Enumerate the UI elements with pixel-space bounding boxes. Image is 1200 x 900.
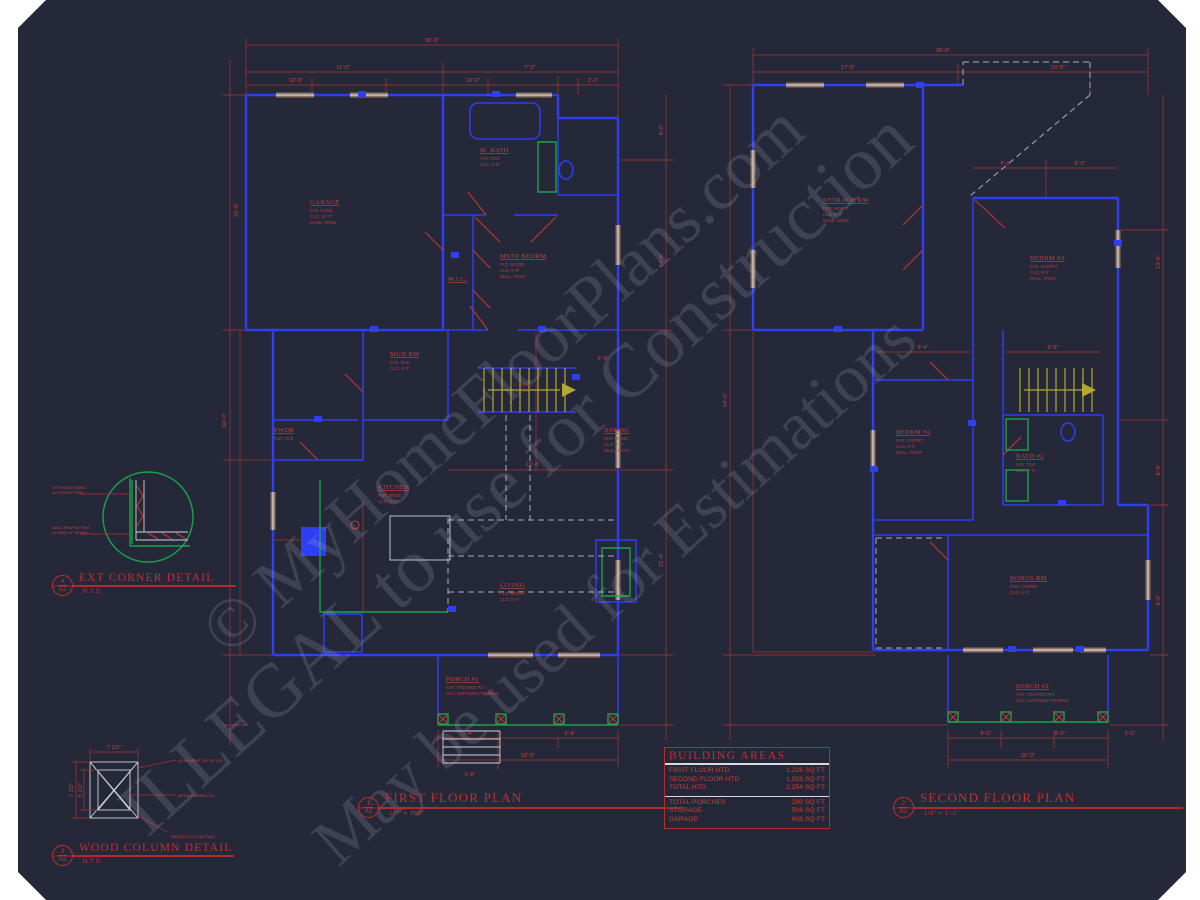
dim-label: 8'-0" <box>1001 161 1012 167</box>
room-label-bonus: BONUS RM <box>1010 575 1047 582</box>
table-title: BUILDING AREAS <box>665 748 829 765</box>
svg-text:FLR: TREATED PLY: FLR: TREATED PLY <box>1016 692 1055 697</box>
table-row: FIRST FLOOR HTD 1,226 SQ FT <box>665 767 829 776</box>
first-floor-title-block: 1 A2 FIRST FLOOR PLAN 1/4" = 1'-0" <box>358 786 683 818</box>
svg-text:FLR: TILE: FLR: TILE <box>390 360 410 365</box>
dim-label: 21'-4" <box>659 553 665 567</box>
porch-columns <box>948 712 1108 722</box>
svg-text:CLG: 9'-0": CLG: 9'-0" <box>500 597 520 602</box>
table-row: STORAGE 508 SQ FT <box>665 807 829 816</box>
room-label-bath2: BATH #2 <box>1016 453 1044 460</box>
dim-label: 19'-8" <box>526 462 540 468</box>
dim-label: 5 1/2" <box>78 783 84 797</box>
kitchen-sink <box>301 527 326 556</box>
dim-label: 2'-8" <box>465 772 476 778</box>
table-row: SECOND FLOOR HTD 1,028 SQ FT <box>665 776 829 785</box>
table-row: GARAGE 608 SQ FT <box>665 816 829 825</box>
dim-label: 26'-0" <box>1021 753 1035 759</box>
detail-marker: 3 A2 <box>52 845 73 866</box>
dim-label: 18'-0" <box>521 753 535 759</box>
svg-text:CLG: 9'-0": CLG: 9'-0" <box>500 268 520 273</box>
svg-text:WALL: PAINT: WALL: PAINT <box>1030 276 1057 281</box>
room-label-pwdr: PWDR <box>274 427 295 434</box>
ceiling-beams-dashed <box>448 518 618 612</box>
walls-exterior <box>246 95 618 655</box>
dim-label: 5'-4" <box>463 731 474 737</box>
svg-text:FLR: TREATED PLY: FLR: TREATED PLY <box>446 685 485 690</box>
second-floor-plan-drawing: 30'-8" 17'-0" 10'-8" 8'-0" 8'-0" 54'-0" … <box>713 35 1193 795</box>
walls-interior <box>873 198 1148 722</box>
svg-text:CLG: 9'-0": CLG: 9'-0" <box>896 444 916 449</box>
dim-label: 30'-8" <box>936 48 950 54</box>
dim-label: 11'-0" <box>336 65 350 71</box>
svg-text:FLR: WOOD: FLR: WOOD <box>604 436 628 441</box>
blueprint-sheet: 30'-8" 11'-0" 7'-2" 10'-8" 10'-8" 3'-0" … <box>18 0 1186 900</box>
table-row: TOTAL HTD 2,254 SQ FT <box>665 784 829 793</box>
detail-note: EXT WOOD SIDING <box>52 486 86 490</box>
plan-marker: 2 A2 <box>893 797 914 818</box>
room-label-porch1: PORCH #1 <box>446 676 479 683</box>
kitchen-counters <box>320 142 630 725</box>
table-row: TOTAL PORCHES 280 SQ FT <box>665 799 829 808</box>
heated-areas-group: FIRST FLOOR HTD 1,226 SQ FT SECOND FLOOR… <box>665 765 829 796</box>
wood-column-title-block: 3 A2 WOOD COLUMN DETAIL N.T.S. <box>52 834 234 866</box>
svg-text:CLG: 9'-0": CLG: 9'-0" <box>378 499 398 504</box>
dimension-lines <box>723 48 1168 768</box>
stairs-note: @ 7 3/4" <box>516 389 531 393</box>
svg-text:FLR: WOOD: FLR: WOOD <box>500 591 524 596</box>
title-underline <box>52 855 234 857</box>
leader-notes: EXT WOOD SIDING W/ CORNER TRIM WALL WRAP… <box>52 486 130 535</box>
dim-label: 7 1/2" <box>69 783 75 797</box>
toilet <box>1061 423 1075 441</box>
title-underline <box>893 807 1183 809</box>
detail-marker: 4 A2 <box>52 575 73 596</box>
detail-note: ALUM WRAP TOP OF COL <box>178 759 223 763</box>
dim-label: 14'-6" <box>659 253 665 267</box>
bathtub <box>470 103 540 139</box>
corner-section <box>130 478 190 546</box>
svg-text:FLR: TILE: FLR: TILE <box>480 156 500 161</box>
dim-label: 10'-8" <box>466 78 480 84</box>
dim-label: 9'-4" <box>565 731 576 737</box>
wood-column-detail-drawing: 7 1/2" 7 1/2" 5 1/2" ALUM WRAP TOP OF CO… <box>48 732 248 837</box>
detail-note: METAL FRAMED COL <box>178 794 215 798</box>
svg-text:CLG: 9'-0": CLG: 9'-0" <box>1030 270 1050 275</box>
dim-label: 8'-0" <box>659 124 665 135</box>
svg-text:FLR: TILE: FLR: TILE <box>1016 462 1036 467</box>
svg-text:CLG: 8'-0": CLG: 8'-0" <box>823 212 843 217</box>
room-label-dining: DINING <box>604 427 630 434</box>
room-label-bedrm3: BEDRM #3 <box>1030 255 1064 262</box>
dim-label: 8'-0" <box>1156 594 1162 605</box>
stairs-note: 17 RISERS <box>514 383 533 387</box>
title-underline <box>52 585 236 587</box>
kitchen-island <box>390 516 450 560</box>
plan-scale: 1/4" = 1'-0" <box>389 811 424 817</box>
svg-text:FLR: WOOD: FLR: WOOD <box>823 206 847 211</box>
svg-text:FLR: TILE: FLR: TILE <box>274 436 294 441</box>
detail-scale: N.T.S. <box>83 859 102 865</box>
room-label-storage: STORAGE RM <box>823 197 869 204</box>
room-label-mstr-bedrm: MSTR BEDRM <box>500 253 546 260</box>
walls-exterior <box>753 85 1148 650</box>
wall-tags <box>834 82 1122 652</box>
building-areas-table: BUILDING AREAS FIRST FLOOR HTD 1,226 SQ … <box>664 747 830 829</box>
svg-text:BASE: NONE: BASE: NONE <box>823 218 849 223</box>
room-label-wic: W.I.C. <box>448 276 467 283</box>
porch-columns <box>438 714 618 724</box>
dim-label: 3'-0" <box>588 78 599 84</box>
dim-label: 8'-0" <box>1055 731 1066 737</box>
svg-text:WALL: PAINT: WALL: PAINT <box>500 274 527 279</box>
svg-text:AT BACK OF SIDING: AT BACK OF SIDING <box>52 531 87 535</box>
room-label-porch2: PORCH #2 <box>1016 683 1049 690</box>
stairs <box>1020 368 1096 412</box>
ext-corner-title-block: 4 A2 EXT CORNER DETAIL N.T.S. <box>52 564 236 596</box>
svg-text:FLR: CARPET: FLR: CARPET <box>1030 264 1058 269</box>
svg-text:FLR: CARPET: FLR: CARPET <box>896 438 924 443</box>
svg-text:CLG: 9'-0": CLG: 9'-0" <box>604 442 624 447</box>
detail-title: EXT CORNER DETAIL <box>79 572 215 584</box>
svg-text:FLR: WOOD: FLR: WOOD <box>500 262 524 267</box>
svg-text:FLR: WOOD: FLR: WOOD <box>378 493 402 498</box>
dim-label: 23'-6" <box>234 203 240 217</box>
room-label-garage: GARAGE <box>310 199 339 206</box>
dim-label: 30'-8" <box>425 38 439 44</box>
svg-text:CLG: 9'-0": CLG: 9'-0" <box>390 366 410 371</box>
detail-bubble <box>103 472 193 562</box>
dim-label: 60'-0" <box>222 413 228 427</box>
dim-label: 3'-0" <box>1125 731 1136 737</box>
leader-notes: ALUM WRAP TOP OF COL METAL FRAMED COL TR… <box>130 759 223 839</box>
plan-scale: 1/4" = 1'-0" <box>924 811 959 817</box>
dim-label: 7 1/2" <box>107 745 121 751</box>
room-labels: STORAGE RM FLR: WOOD CLG: 8'-0" BASE: NO… <box>823 197 1070 703</box>
dim-label: 17'-0" <box>841 65 855 71</box>
dim-label: 10'-8" <box>1051 65 1065 71</box>
svg-text:CLG: 10'-0": CLG: 10'-0" <box>310 214 333 219</box>
room-label-mbath: M. BATH <box>480 147 509 154</box>
svg-text:CLG: EXPOSED FRAMING: CLG: EXPOSED FRAMING <box>1016 698 1070 703</box>
ext-corner-detail-drawing: EXT WOOD SIDING W/ CORNER TRIM WALL WRAP… <box>48 455 233 580</box>
dim-label: 54'-0" <box>723 393 729 407</box>
room-label-bedrm2: BEDRM #2 <box>896 429 930 436</box>
plan-title: SECOND FLOOR PLAN <box>920 790 1075 806</box>
unheated-areas-group: TOTAL PORCHES 280 SQ FT STORAGE 508 SQ F… <box>665 796 829 828</box>
svg-text:WALL: PAINT: WALL: PAINT <box>604 448 631 453</box>
dim-label: 9'-8" <box>598 356 609 362</box>
first-floor-plan-drawing: 30'-8" 11'-0" 7'-2" 10'-8" 10'-8" 3'-0" … <box>213 28 693 788</box>
dim-label: 10'-8" <box>289 78 303 84</box>
plan-marker: 1 A2 <box>358 797 379 818</box>
dim-label: 8'-0" <box>981 731 992 737</box>
svg-text:CLG: 9'-0": CLG: 9'-0" <box>1016 468 1036 473</box>
detail-scale: N.T.S. <box>83 589 102 595</box>
plan-title: FIRST FLOOR PLAN <box>385 790 522 806</box>
detail-note: WALL WRAP W/ TRIM <box>52 526 89 530</box>
svg-text:WALL: PAINT: WALL: PAINT <box>896 450 923 455</box>
room-label-kitchen: KITCHEN <box>378 484 409 491</box>
svg-text:FLR: CONC: FLR: CONC <box>310 208 333 213</box>
svg-text:BASE: NONE: BASE: NONE <box>310 220 336 225</box>
walls-interior <box>273 103 636 725</box>
dim-label: 8'-4" <box>1156 464 1162 475</box>
wall-tags <box>314 91 580 612</box>
detail-title: WOOD COLUMN DETAIL <box>79 842 233 854</box>
svg-text:CLG: EXPOSED FRAMING: CLG: EXPOSED FRAMING <box>446 691 500 696</box>
svg-text:CLG: 9'-0": CLG: 9'-0" <box>480 162 500 167</box>
dim-label: 13'-4" <box>1156 255 1162 269</box>
title-underline <box>358 807 683 809</box>
dim-label: 8'-0" <box>1075 161 1086 167</box>
second-floor-title-block: 2 A2 SECOND FLOOR PLAN 1/4" = 1'-0" <box>893 786 1183 818</box>
roof-outline-dashed <box>876 62 1090 648</box>
dim-label: 7'-2" <box>525 65 536 71</box>
windows <box>753 85 1148 650</box>
room-label-living: LIVING <box>500 582 525 589</box>
svg-text:CLG: 9'-0": CLG: 9'-0" <box>1010 590 1030 595</box>
dim-label: 9'-4" <box>918 345 929 351</box>
svg-text:FLR: CARPET: FLR: CARPET <box>1010 584 1038 589</box>
column-section <box>90 762 138 818</box>
svg-text:W/ CORNER TRIM: W/ CORNER TRIM <box>52 491 83 495</box>
room-label-mudrm: MUD RM <box>390 351 419 358</box>
toilet <box>559 161 573 179</box>
dim-label: 9'-8" <box>1048 345 1059 351</box>
